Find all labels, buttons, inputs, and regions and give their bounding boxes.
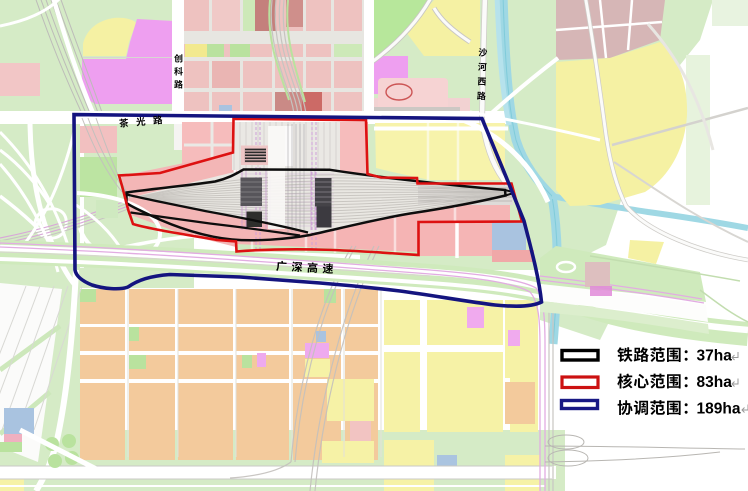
- svg-text:83ha: 83ha: [697, 374, 733, 391]
- svg-text:37ha: 37ha: [697, 348, 733, 365]
- svg-text:189ha: 189ha: [697, 401, 741, 418]
